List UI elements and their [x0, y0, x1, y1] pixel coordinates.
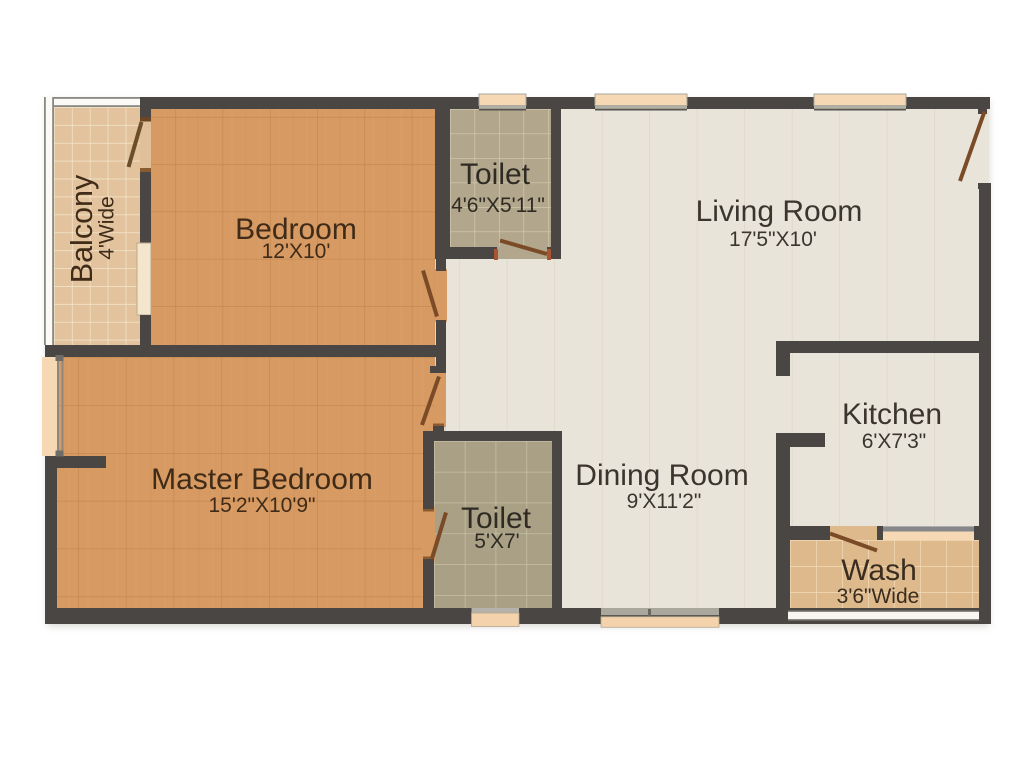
- svg-text:4'6"X5'11": 4'6"X5'11": [451, 194, 545, 217]
- svg-text:Kitchen: Kitchen: [842, 398, 942, 431]
- svg-text:15'2"X10'9": 15'2"X10'9": [208, 494, 315, 517]
- svg-text:Toilet: Toilet: [460, 158, 531, 191]
- svg-text:Balcony: Balcony: [65, 174, 99, 283]
- svg-text:Master Bedroom: Master Bedroom: [151, 463, 373, 496]
- svg-text:6'X7'3": 6'X7'3": [862, 430, 927, 453]
- svg-text:5'X7': 5'X7': [474, 530, 519, 553]
- svg-text:Dining Room: Dining Room: [575, 459, 748, 492]
- svg-text:Wash: Wash: [841, 554, 917, 587]
- svg-text:Living Room: Living Room: [696, 195, 863, 228]
- svg-text:3'6"Wide: 3'6"Wide: [837, 585, 920, 608]
- svg-text:12'X10': 12'X10': [262, 240, 331, 263]
- svg-text:9'X11'2": 9'X11'2": [627, 490, 702, 513]
- svg-text:17'5"X10': 17'5"X10': [729, 228, 817, 251]
- svg-text:4'Wide: 4'Wide: [96, 196, 119, 260]
